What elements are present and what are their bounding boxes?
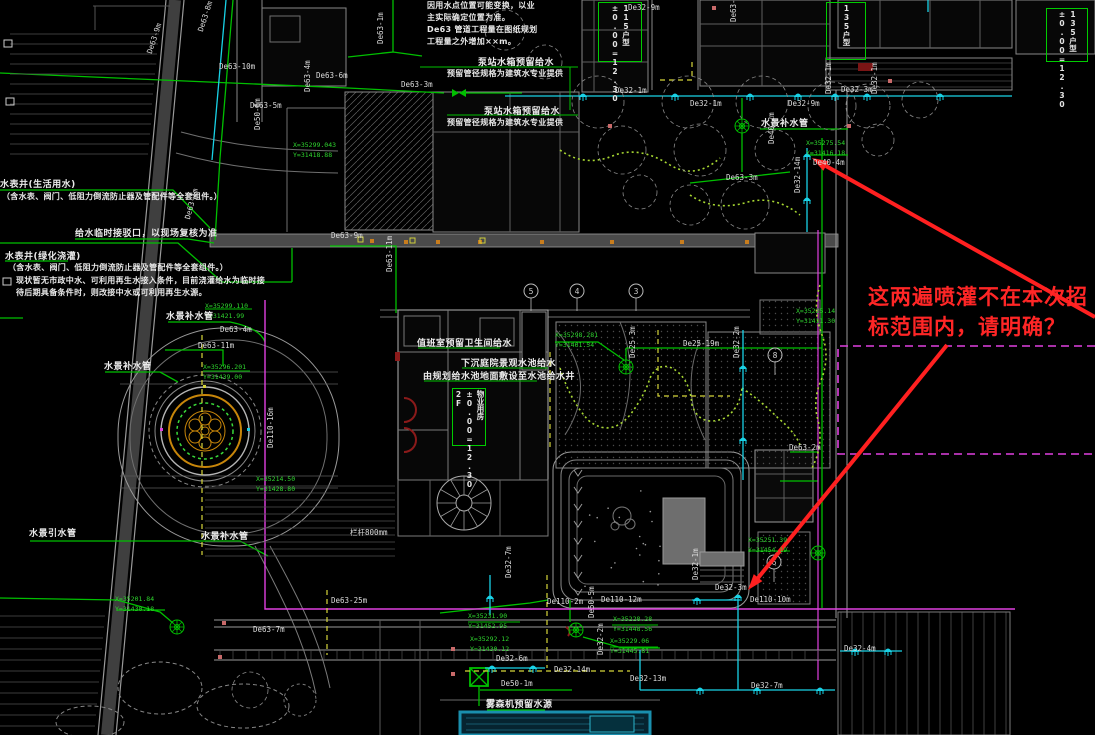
pool-speckle bbox=[614, 562, 616, 564]
pool-speckle bbox=[657, 584, 659, 586]
rotor-sprinkler-icon bbox=[811, 546, 825, 560]
pool-speckle bbox=[658, 560, 660, 562]
pool-speckle bbox=[651, 521, 653, 523]
legend-mark bbox=[3, 278, 11, 285]
rotor-sprinkler-icon bbox=[170, 620, 184, 634]
cad-site-plan-canvas[interactable]: 54386 De63-9mDe63-8mDe63-10mDe63-5mDe63-… bbox=[0, 0, 1095, 735]
svg-text:4: 4 bbox=[575, 287, 580, 296]
axis-bubble: 5 bbox=[524, 284, 538, 311]
road-marker bbox=[404, 240, 408, 244]
rotor-sprinkler-icon bbox=[619, 360, 633, 374]
road-marker bbox=[847, 124, 851, 128]
pool-speckle bbox=[584, 586, 586, 588]
road-marker bbox=[712, 6, 716, 10]
tree-canopy-icon bbox=[528, 45, 562, 79]
sprinkler-head-icon bbox=[579, 94, 587, 102]
pool-speckle bbox=[596, 517, 598, 519]
stepping-marks bbox=[574, 470, 582, 595]
sprinkler-head-icon bbox=[831, 94, 839, 102]
pool-speckle bbox=[607, 507, 609, 509]
pool-speckle bbox=[643, 543, 645, 545]
road-marker bbox=[451, 672, 455, 676]
pool-speckle bbox=[611, 567, 613, 569]
pool-speckle bbox=[636, 548, 638, 550]
svg-text:8: 8 bbox=[773, 351, 778, 360]
rotor-sprinkler-icon bbox=[735, 119, 749, 133]
sprinkler-head-icon bbox=[863, 94, 871, 102]
sprinkler-head-icon bbox=[734, 595, 742, 603]
road-marker bbox=[436, 240, 440, 244]
tree-canopy-icon bbox=[623, 175, 657, 209]
rotor-sprinkler-icon bbox=[569, 623, 583, 637]
tree-canopy-icon bbox=[862, 124, 894, 156]
sprinkler-head-icon bbox=[803, 198, 811, 206]
tree-canopy-icon bbox=[670, 185, 710, 225]
site-linework bbox=[56, 0, 1095, 735]
fountain-feature bbox=[149, 375, 261, 487]
review-comment: 这两遍喷灌不在本次招 标范围内，请明确？ bbox=[868, 282, 1088, 342]
bottom-water-pool bbox=[460, 712, 650, 735]
pool-speckle bbox=[658, 573, 660, 575]
axis-bubble: 4 bbox=[570, 284, 584, 311]
tree-canopy-icon bbox=[485, 10, 525, 50]
pool-speckle bbox=[619, 517, 621, 519]
pool-speckle bbox=[645, 544, 647, 546]
road-marker bbox=[745, 240, 749, 244]
sprinkler-head-icon bbox=[696, 688, 704, 696]
sprinkler-head-icon bbox=[671, 94, 679, 102]
road-marker bbox=[888, 79, 892, 83]
pool-speckle bbox=[643, 581, 645, 583]
review-comment-line1: 这两遍喷灌不在本次招 bbox=[868, 282, 1088, 312]
svg-text:3: 3 bbox=[634, 287, 639, 296]
legend-mark bbox=[4, 40, 12, 47]
road-marker bbox=[680, 240, 684, 244]
sprinkler-head-icon bbox=[529, 666, 537, 674]
sprinkler-head-icon bbox=[746, 94, 754, 102]
road-marker bbox=[610, 240, 614, 244]
tree-canopy-icon bbox=[674, 124, 726, 176]
tree-canopy-icon bbox=[598, 126, 646, 174]
tree-canopy-icon bbox=[232, 672, 268, 708]
road-marker bbox=[608, 124, 612, 128]
road-marker bbox=[451, 647, 455, 651]
pool-speckle bbox=[640, 490, 642, 492]
pool-speckle bbox=[614, 521, 616, 523]
sprinkler-head-icon bbox=[488, 666, 496, 674]
tree-canopy-icon bbox=[662, 76, 714, 128]
tree-canopy-icon bbox=[846, 84, 890, 128]
pool-speckle bbox=[659, 546, 661, 548]
sprinkler-head-icon bbox=[794, 94, 802, 102]
pool-speckle bbox=[594, 541, 596, 543]
road-marker bbox=[370, 239, 374, 243]
pool-speckle bbox=[639, 536, 641, 538]
road-marker bbox=[222, 621, 226, 625]
pool-speckle bbox=[650, 511, 652, 513]
sprinkler-head-icon bbox=[693, 598, 701, 606]
pool-speckle bbox=[589, 514, 591, 516]
review-arrow-1-head bbox=[812, 158, 829, 171]
sprinkler-head-icon bbox=[753, 688, 761, 696]
road-marker bbox=[540, 240, 544, 244]
sprinkler-head-icon bbox=[486, 596, 494, 604]
svg-text:5: 5 bbox=[529, 287, 534, 296]
axis-bubble: 3 bbox=[629, 284, 643, 311]
road-marker bbox=[218, 655, 222, 659]
pool-speckle bbox=[639, 554, 641, 556]
tree-canopy-icon bbox=[755, 130, 795, 170]
irrigation-plan-drawing: 54386 bbox=[0, 0, 1095, 735]
sprinkler-head-icon bbox=[816, 688, 824, 696]
review-comment-line2: 标范围内，请明确？ bbox=[868, 312, 1088, 342]
